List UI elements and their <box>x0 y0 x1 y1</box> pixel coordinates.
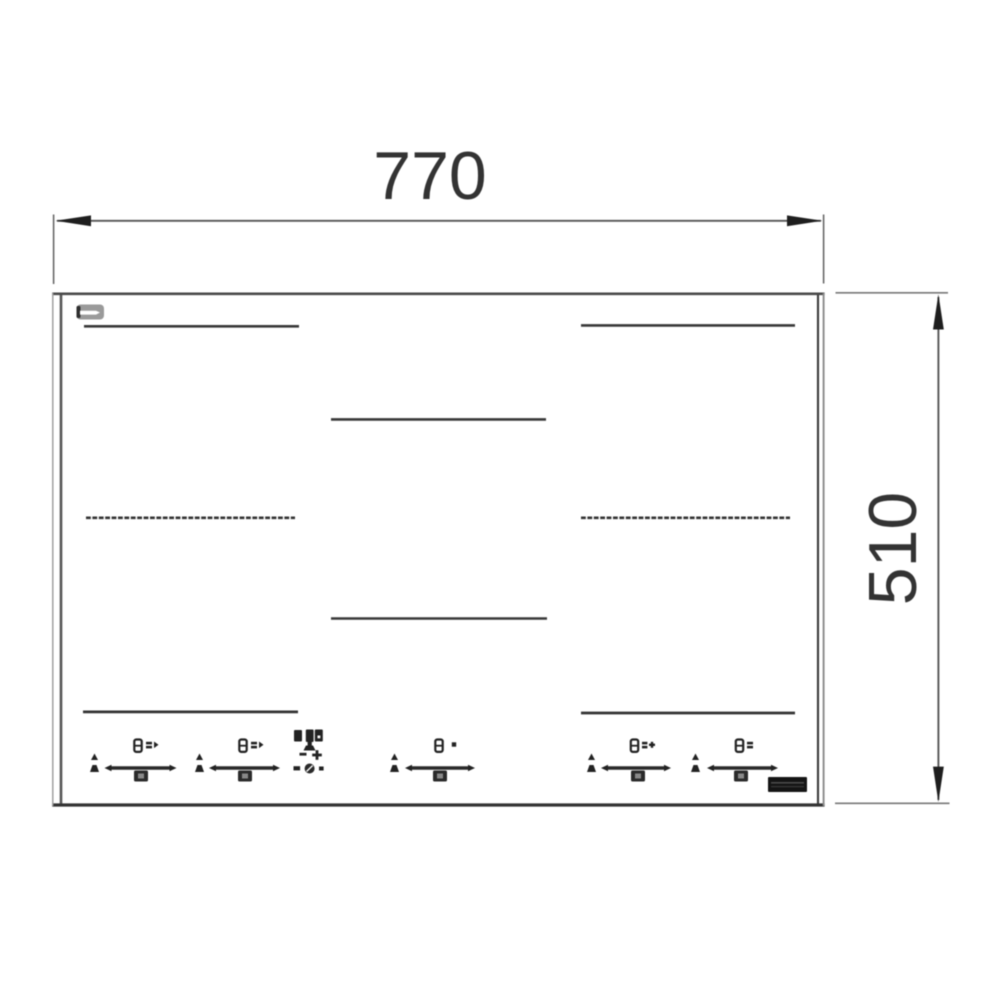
svg-text:770: 770 <box>373 138 486 214</box>
svg-text:510: 510 <box>855 492 931 605</box>
